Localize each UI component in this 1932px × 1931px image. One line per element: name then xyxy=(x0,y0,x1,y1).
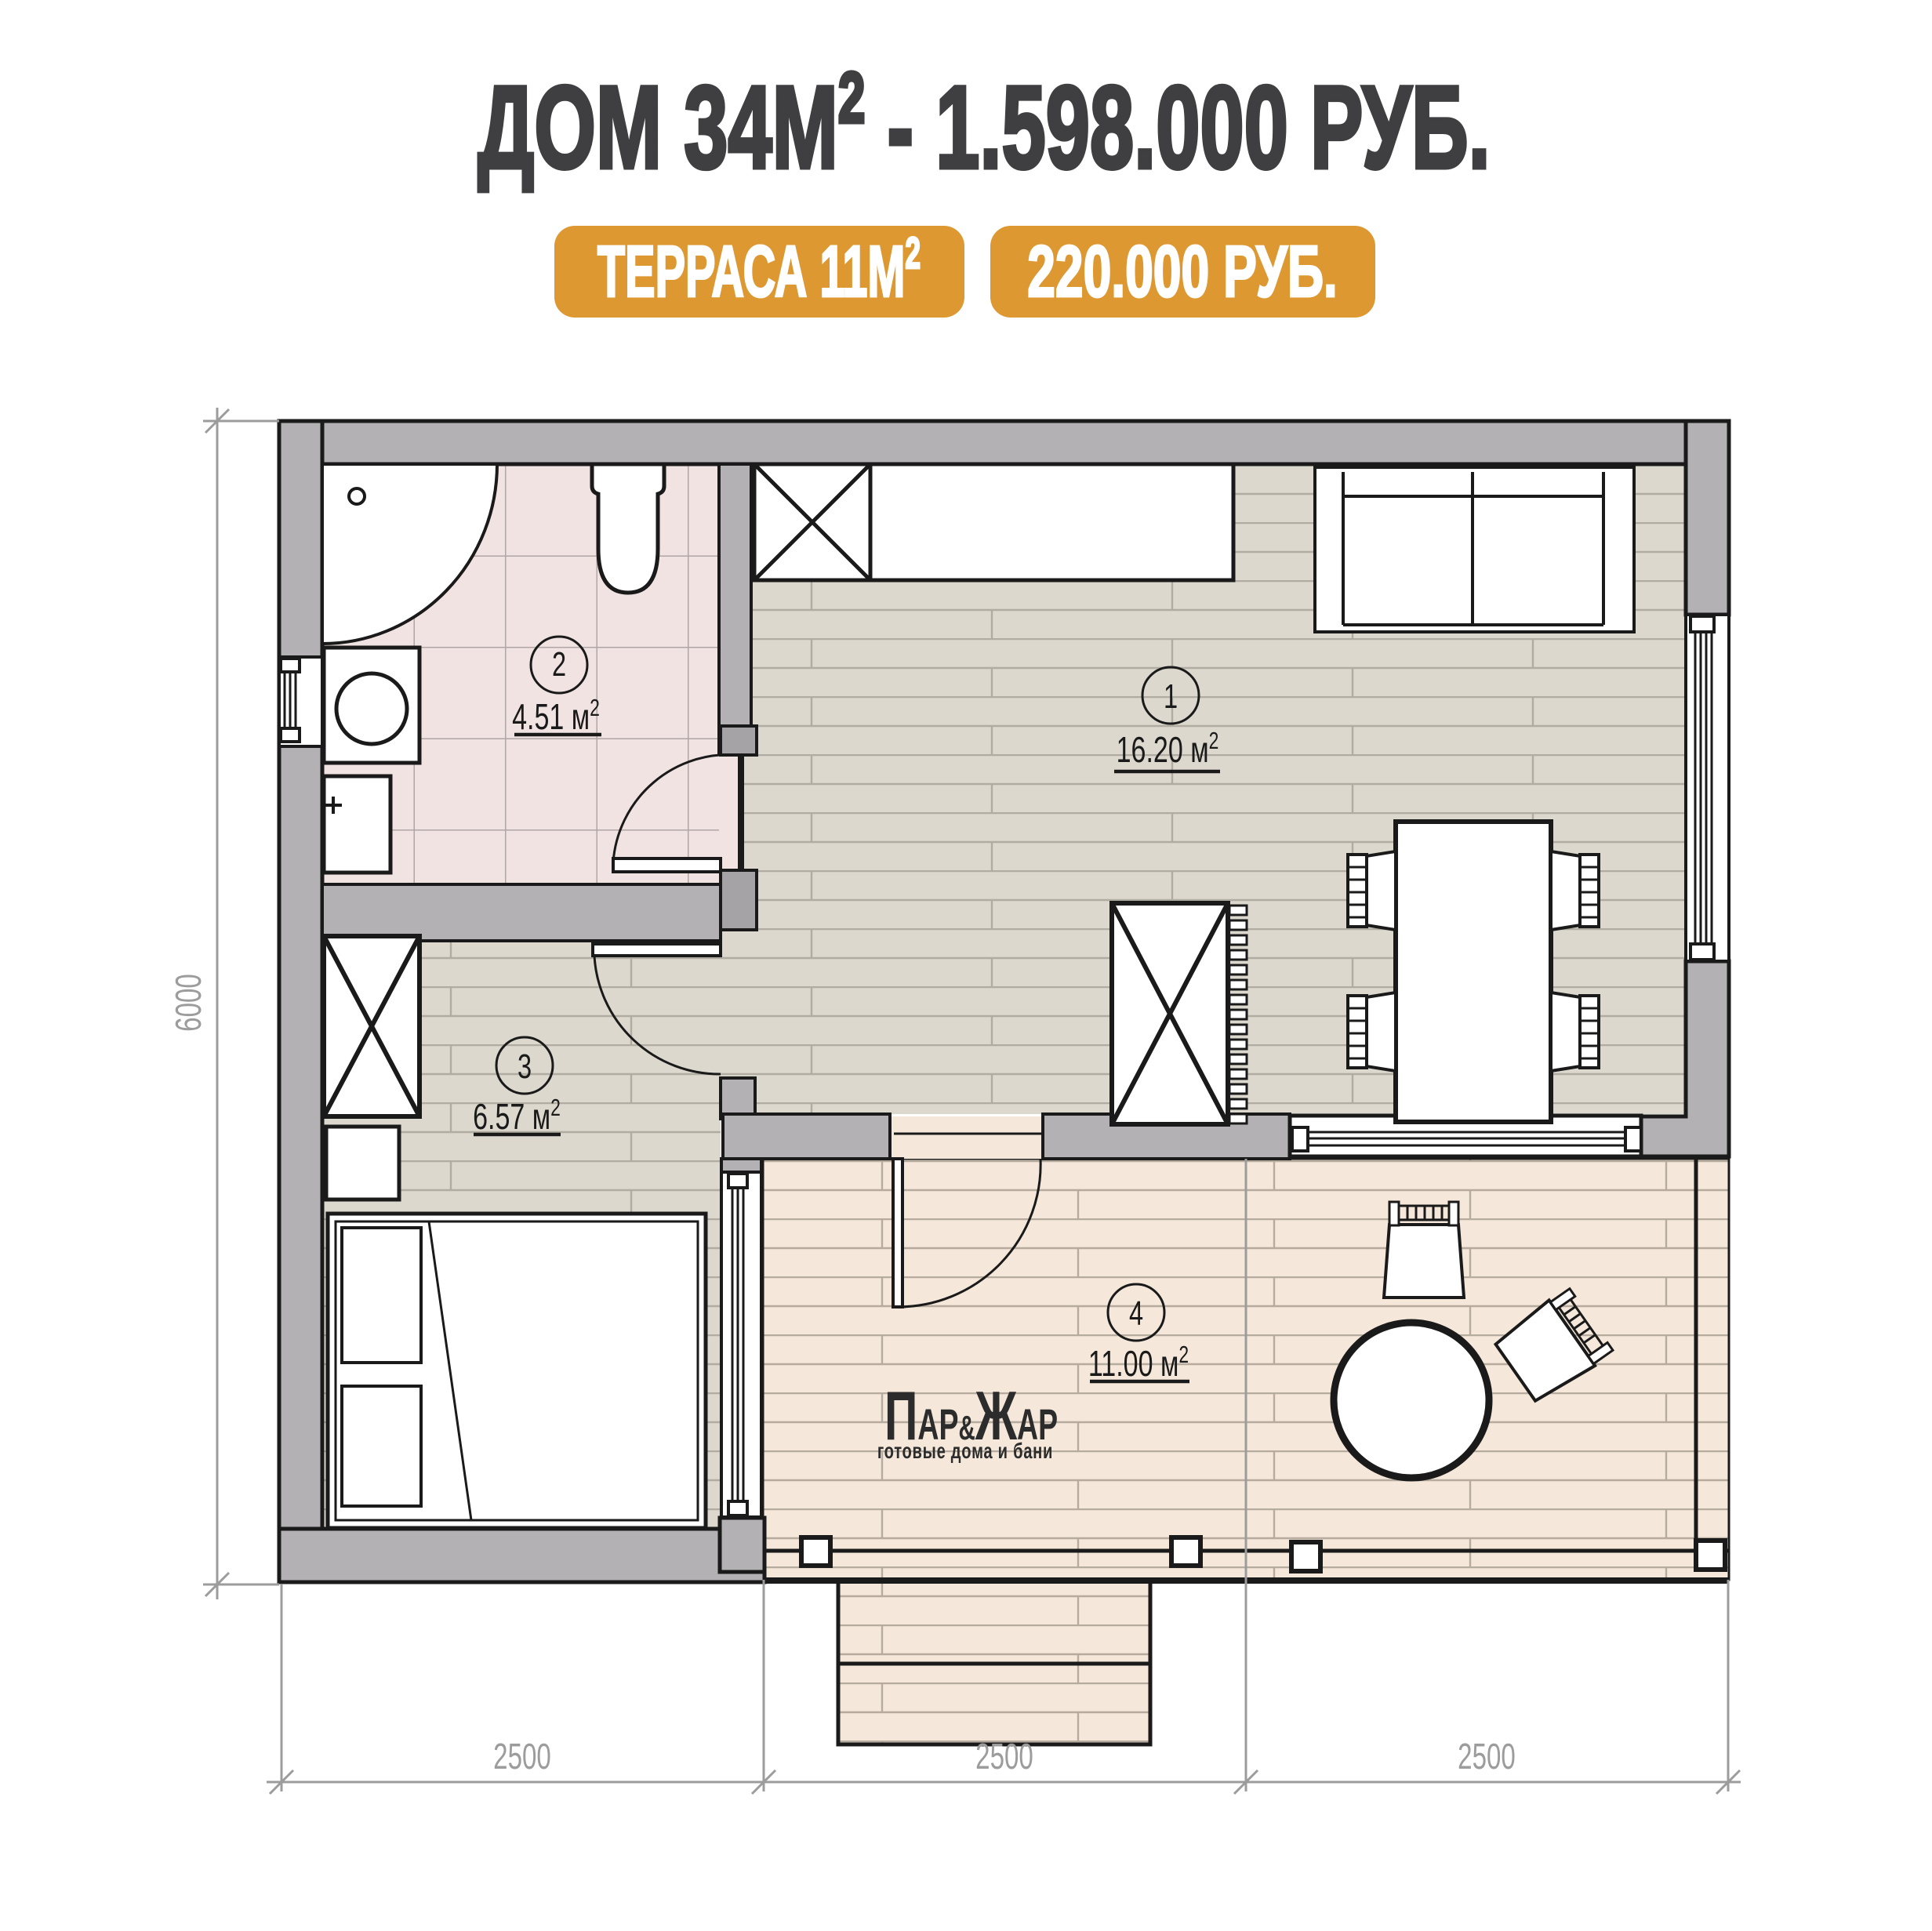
svg-text:ДОМ 34М2 - 1.598.000 РУБ.: ДОМ 34М2 - 1.598.000 РУБ. xyxy=(478,57,1490,194)
svg-text:ТЕРРАСА 11М2: ТЕРРАСА 11М2 xyxy=(597,229,921,313)
svg-text:6.57 м2: 6.57 м2 xyxy=(473,1094,561,1138)
svg-text:11.00 м2: 11.00 м2 xyxy=(1088,1341,1189,1385)
svg-text:готовые дома и бани: готовые дома и бани xyxy=(877,1439,1053,1464)
svg-text:16.20 м2: 16.20 м2 xyxy=(1117,727,1219,771)
svg-text:4: 4 xyxy=(1129,1294,1143,1333)
svg-text:2500: 2500 xyxy=(493,1737,551,1777)
svg-text:2500: 2500 xyxy=(975,1737,1033,1777)
svg-text:3: 3 xyxy=(517,1047,532,1086)
svg-text:2500: 2500 xyxy=(1458,1737,1516,1777)
svg-text:220.000 РУБ.: 220.000 РУБ. xyxy=(1027,230,1338,312)
svg-text:6000: 6000 xyxy=(169,974,209,1032)
svg-text:1: 1 xyxy=(1164,677,1178,716)
svg-text:2: 2 xyxy=(552,645,566,684)
svg-text:4.51 м2: 4.51 м2 xyxy=(512,694,600,738)
